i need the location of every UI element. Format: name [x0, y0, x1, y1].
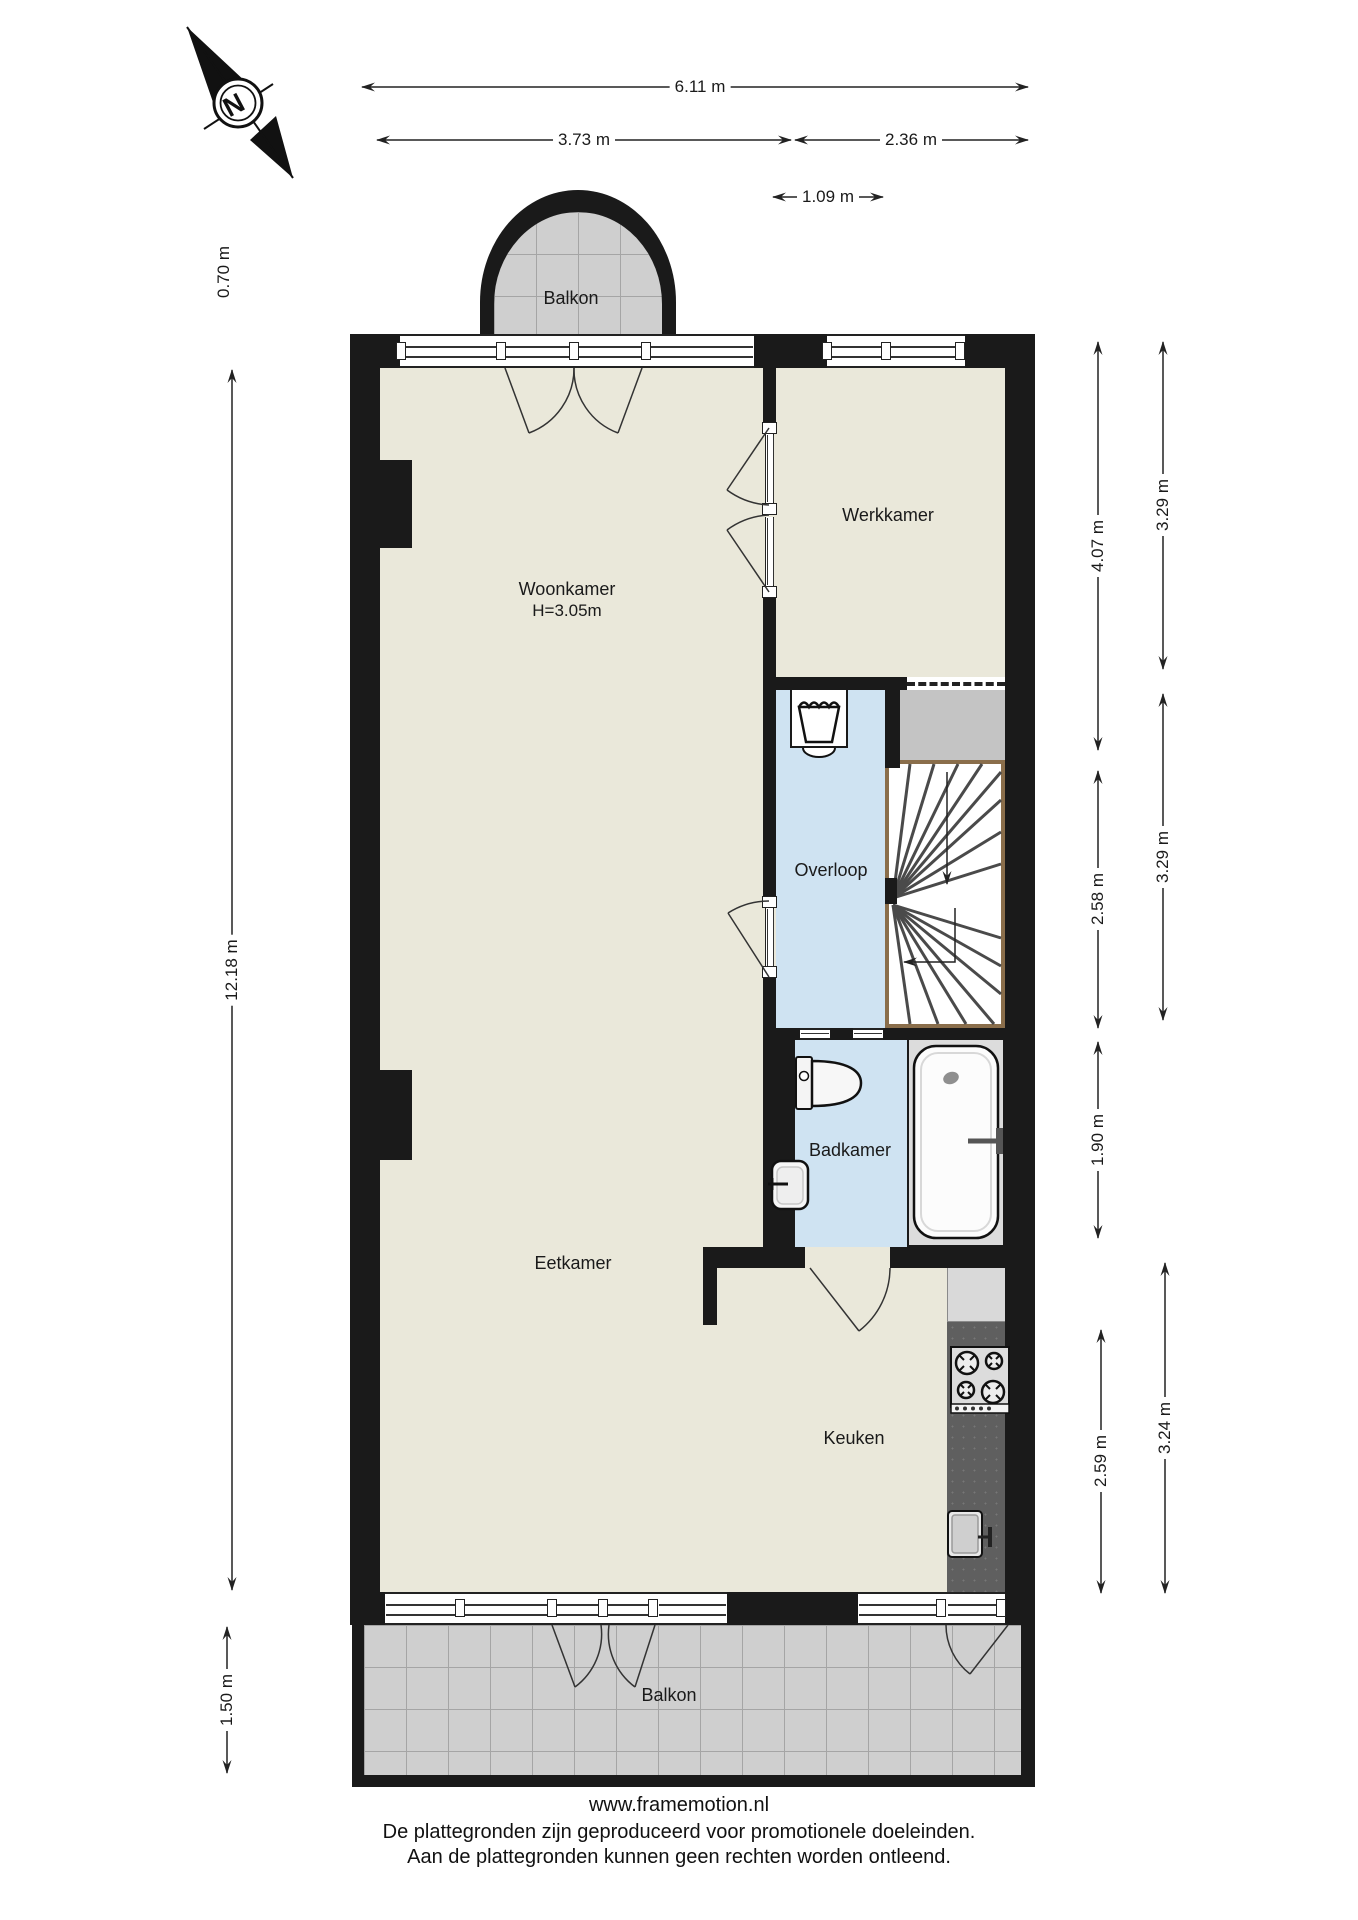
room-label-balkon-bottom: Balkon [641, 1684, 696, 1706]
wall-kitchen-stub [703, 1268, 717, 1325]
dim-left-total: 12.18 m [222, 934, 242, 1005]
werkkamer-door-glass-2 [765, 517, 774, 586]
compass-north-label: N [218, 87, 249, 123]
door-hinge [762, 896, 777, 908]
wall-corridor-3 [763, 677, 776, 896]
wall-top-pier [754, 334, 827, 368]
closet-area [900, 690, 1005, 760]
wall-bathroom-left [763, 1028, 795, 1247]
overloop-door-glass [765, 908, 774, 968]
woonkamer-ceiling-height: H=3.05m [519, 600, 616, 622]
window-top-1 [400, 334, 501, 368]
window-bottom-2 [658, 1592, 727, 1625]
balcony-bottom-wall-left [352, 1618, 364, 1787]
room-label-overloop: Overloop [794, 859, 867, 881]
kitchen-cabinet [947, 1262, 1009, 1322]
mullion [936, 1599, 946, 1617]
room-label-werkkamer: Werkkamer [842, 504, 934, 526]
room-label-keuken: Keuken [823, 1427, 884, 1449]
wall-bathroom-bottom-right [890, 1247, 1005, 1268]
mullion [396, 342, 406, 360]
wall-corridor-4 [763, 978, 776, 1028]
wall-pier-living [380, 460, 412, 548]
door-mullion [762, 503, 777, 515]
footer-website: www.framemotion.nl [0, 1794, 1358, 1817]
footer-disclaimer-2: Aan de plattegronden kunnen geen rechten… [0, 1846, 1358, 1869]
window-top-2 [646, 334, 754, 368]
mullion [496, 342, 506, 360]
balcony-bottom-wall-right [1021, 1618, 1035, 1787]
dashed-opening [907, 677, 1005, 690]
wall-right-outer [1005, 334, 1035, 1592]
dim-left-balcony-bottom: 1.50 m [217, 1669, 237, 1731]
wall-werkkamer-bottom [776, 677, 907, 690]
mullion [955, 342, 965, 360]
mullion [641, 342, 651, 360]
window-bottom-1 [385, 1592, 548, 1625]
wall-left-outer [350, 334, 380, 1592]
bathroom-transom-window-1 [800, 1028, 830, 1040]
room-label-badkamer: Badkamer [809, 1139, 891, 1161]
mullion [881, 342, 891, 360]
room-label-balkon-top: Balkon [543, 287, 598, 309]
floor-plan: N [0, 0, 1358, 1920]
dim-top-window: 1.09 m [797, 187, 859, 207]
window-top-3 [827, 334, 965, 368]
compass-icon: N [187, 27, 293, 178]
dim-right-outer-bottom: 3.24 m [1155, 1397, 1175, 1459]
mullion [648, 1599, 658, 1617]
mullion [822, 342, 832, 360]
wall-corridor-2 [763, 598, 776, 677]
mullion [569, 342, 579, 360]
woonkamer-name: Woonkamer [519, 578, 616, 600]
mullion [598, 1599, 608, 1617]
dim-right-keuken-inner: 2.59 m [1091, 1430, 1111, 1492]
washing-machine [790, 688, 848, 748]
wall-bottom-pier [727, 1592, 858, 1625]
wall-bathroom-bottom-left [703, 1247, 805, 1268]
kitchen-counter [947, 1322, 1009, 1592]
room-label-eetkamer: Eetkamer [534, 1252, 611, 1274]
dim-right-werkkamer: 4.07 m [1088, 515, 1108, 577]
dim-right-badkamer: 1.90 m [1088, 1109, 1108, 1171]
wall-corridor-1 [763, 368, 776, 422]
dim-right-outer-top: 3.29 m [1153, 474, 1173, 536]
bathroom-transom-window-2 [853, 1028, 883, 1040]
door-hinge [762, 966, 777, 978]
room-label-woonkamer: Woonkamer H=3.05m [519, 578, 616, 622]
mullion [547, 1599, 557, 1617]
wall-top-corner-left [350, 334, 400, 368]
mullion [996, 1599, 1006, 1617]
door-hinge [762, 422, 777, 434]
wall-closet-divider [885, 690, 900, 768]
dim-top-right: 2.36 m [880, 130, 942, 150]
dim-right-overloop: 2.58 m [1088, 868, 1108, 930]
door-hinge [762, 586, 777, 598]
staircase [885, 760, 1005, 1028]
dim-left-balcony: 0.70 m [214, 241, 234, 303]
wall-top-corner-right [965, 334, 1035, 368]
werkkamer-door-glass-1 [765, 434, 774, 503]
wall-pier-dining [380, 1070, 412, 1160]
dim-top-total: 6.11 m [670, 77, 731, 97]
window-bottom-3 [858, 1592, 947, 1625]
balcony-bottom-wall-bottom [352, 1775, 1035, 1787]
bathtub-zone [907, 1035, 1005, 1247]
dim-top-left: 3.73 m [553, 130, 615, 150]
dim-right-outer-mid: 3.29 m [1153, 826, 1173, 888]
footer-disclaimer-1: De plattegronden zijn geproduceerd voor … [0, 1821, 1358, 1844]
mullion [455, 1599, 465, 1617]
